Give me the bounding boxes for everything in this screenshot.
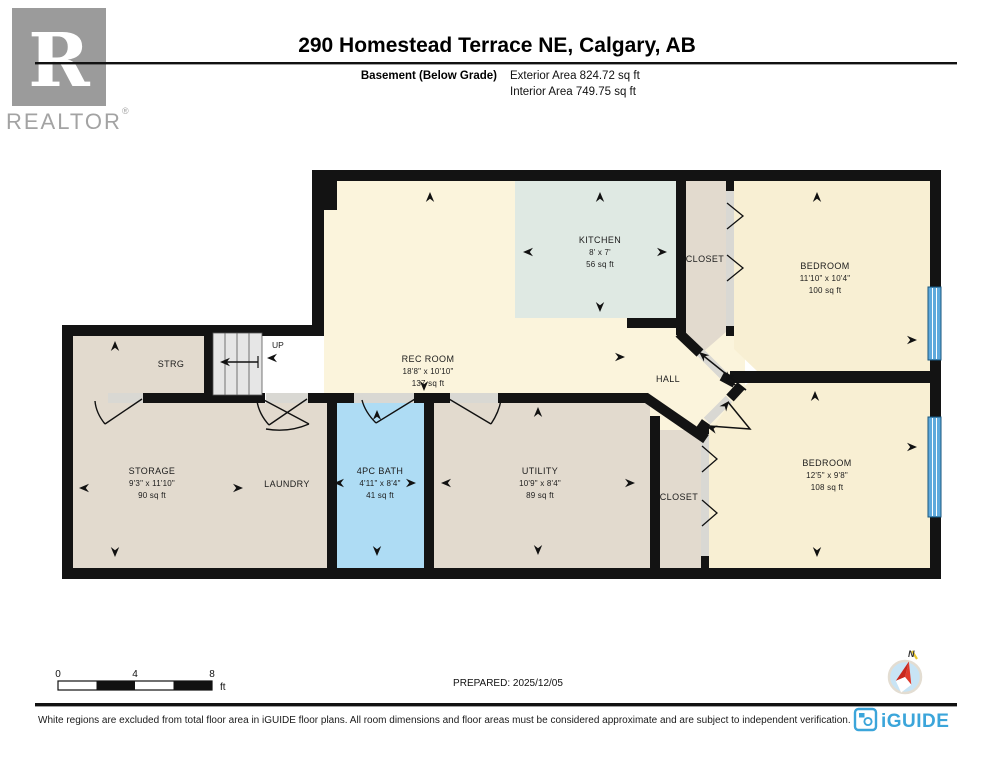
bedroom-top-dims: 11'10" x 10'4" [800,274,851,283]
stairs [213,333,262,395]
header-rule [35,62,957,64]
exterior-area-label: Exterior Area 824.72 sq ft [510,70,641,82]
rec-room-dims: 18'8" x 10'10" [402,367,453,376]
window-bedroom-bottom [928,417,941,517]
compass-icon: N [889,649,921,694]
footer: White regions are excluded from total fl… [35,703,957,732]
room-closet-top [686,181,726,352]
scale-tick-4: 4 [132,669,138,680]
bedroom-top-label: BEDROOM [800,261,849,271]
floorplan-page: R REALTOR ® 290 Homestead Terrace NE, Ca… [0,0,993,768]
bedroom-bottom-dims: 12'5" x 9'8" [806,471,848,480]
kitchen-label: KITCHEN [579,235,621,245]
utility-label: UTILITY [522,466,558,476]
page-title: 290 Homestead Terrace NE, Calgary, AB [298,34,696,57]
floor-label: Basement (Below Grade) [361,70,497,82]
floorplan-svg: R REALTOR ® 290 Homestead Terrace NE, Ca… [0,0,993,768]
hall-label: HALL [656,374,680,384]
bedroom-top-area: 100 sq ft [809,286,842,295]
rec-room-label: REC ROOM [402,354,455,364]
bath-area: 41 sq ft [366,491,394,500]
iguide-logo-icon [855,709,876,730]
utility-area: 89 sq ft [526,491,554,500]
footer-disclaimer: White regions are excluded from total fl… [38,715,851,726]
scale-unit: ft [220,682,226,693]
storage-dims: 9'3" x 11'10" [129,479,175,488]
realtor-logo-letter: R [28,18,90,104]
stairs-up-label: UP [272,340,284,350]
footer-rule [35,703,957,706]
header: R REALTOR ® 290 Homestead Terrace NE, Ca… [6,8,957,134]
iguide-wordmark: iGUIDE [881,711,949,732]
room-strg [73,336,204,393]
storage-label: STORAGE [129,466,176,476]
strg-label: STRG [158,359,185,369]
closet-bottom-label: CLOSET [660,492,699,502]
window-bedroom-top [928,287,941,360]
scale-bar: 0 4 8 ft [55,669,226,693]
laundry-label: LAUNDRY [264,479,310,489]
stairs-door-opening [266,393,308,403]
realtor-wordmark: REALTOR [6,109,122,134]
kitchen-dims: 8' x 7' [589,248,611,257]
registered-mark-icon: ® [122,106,129,116]
bedroom-bottom-area: 108 sq ft [811,483,844,492]
utility-dims: 10'9" x 8'4" [519,479,561,488]
kitchen-area: 56 sq ft [586,260,614,269]
storage-area: 90 sq ft [138,491,166,500]
compass-north-label: N [908,649,915,659]
bath-dims: 4'11" x 8'4" [359,479,400,488]
rec-room-area: 137 sq ft [412,379,445,388]
prepared-date: PREPARED: 2025/12/05 [453,678,563,689]
interior-area-label: Interior Area 749.75 sq ft [510,86,637,98]
closet-top-label: CLOSET [686,254,725,264]
utility-door-opening [450,393,498,403]
bath-label: 4PC BATH [357,466,404,476]
scale-tick-8: 8 [209,669,215,680]
bedroom-bottom-label: BEDROOM [802,458,851,468]
scale-tick-0: 0 [55,669,61,680]
